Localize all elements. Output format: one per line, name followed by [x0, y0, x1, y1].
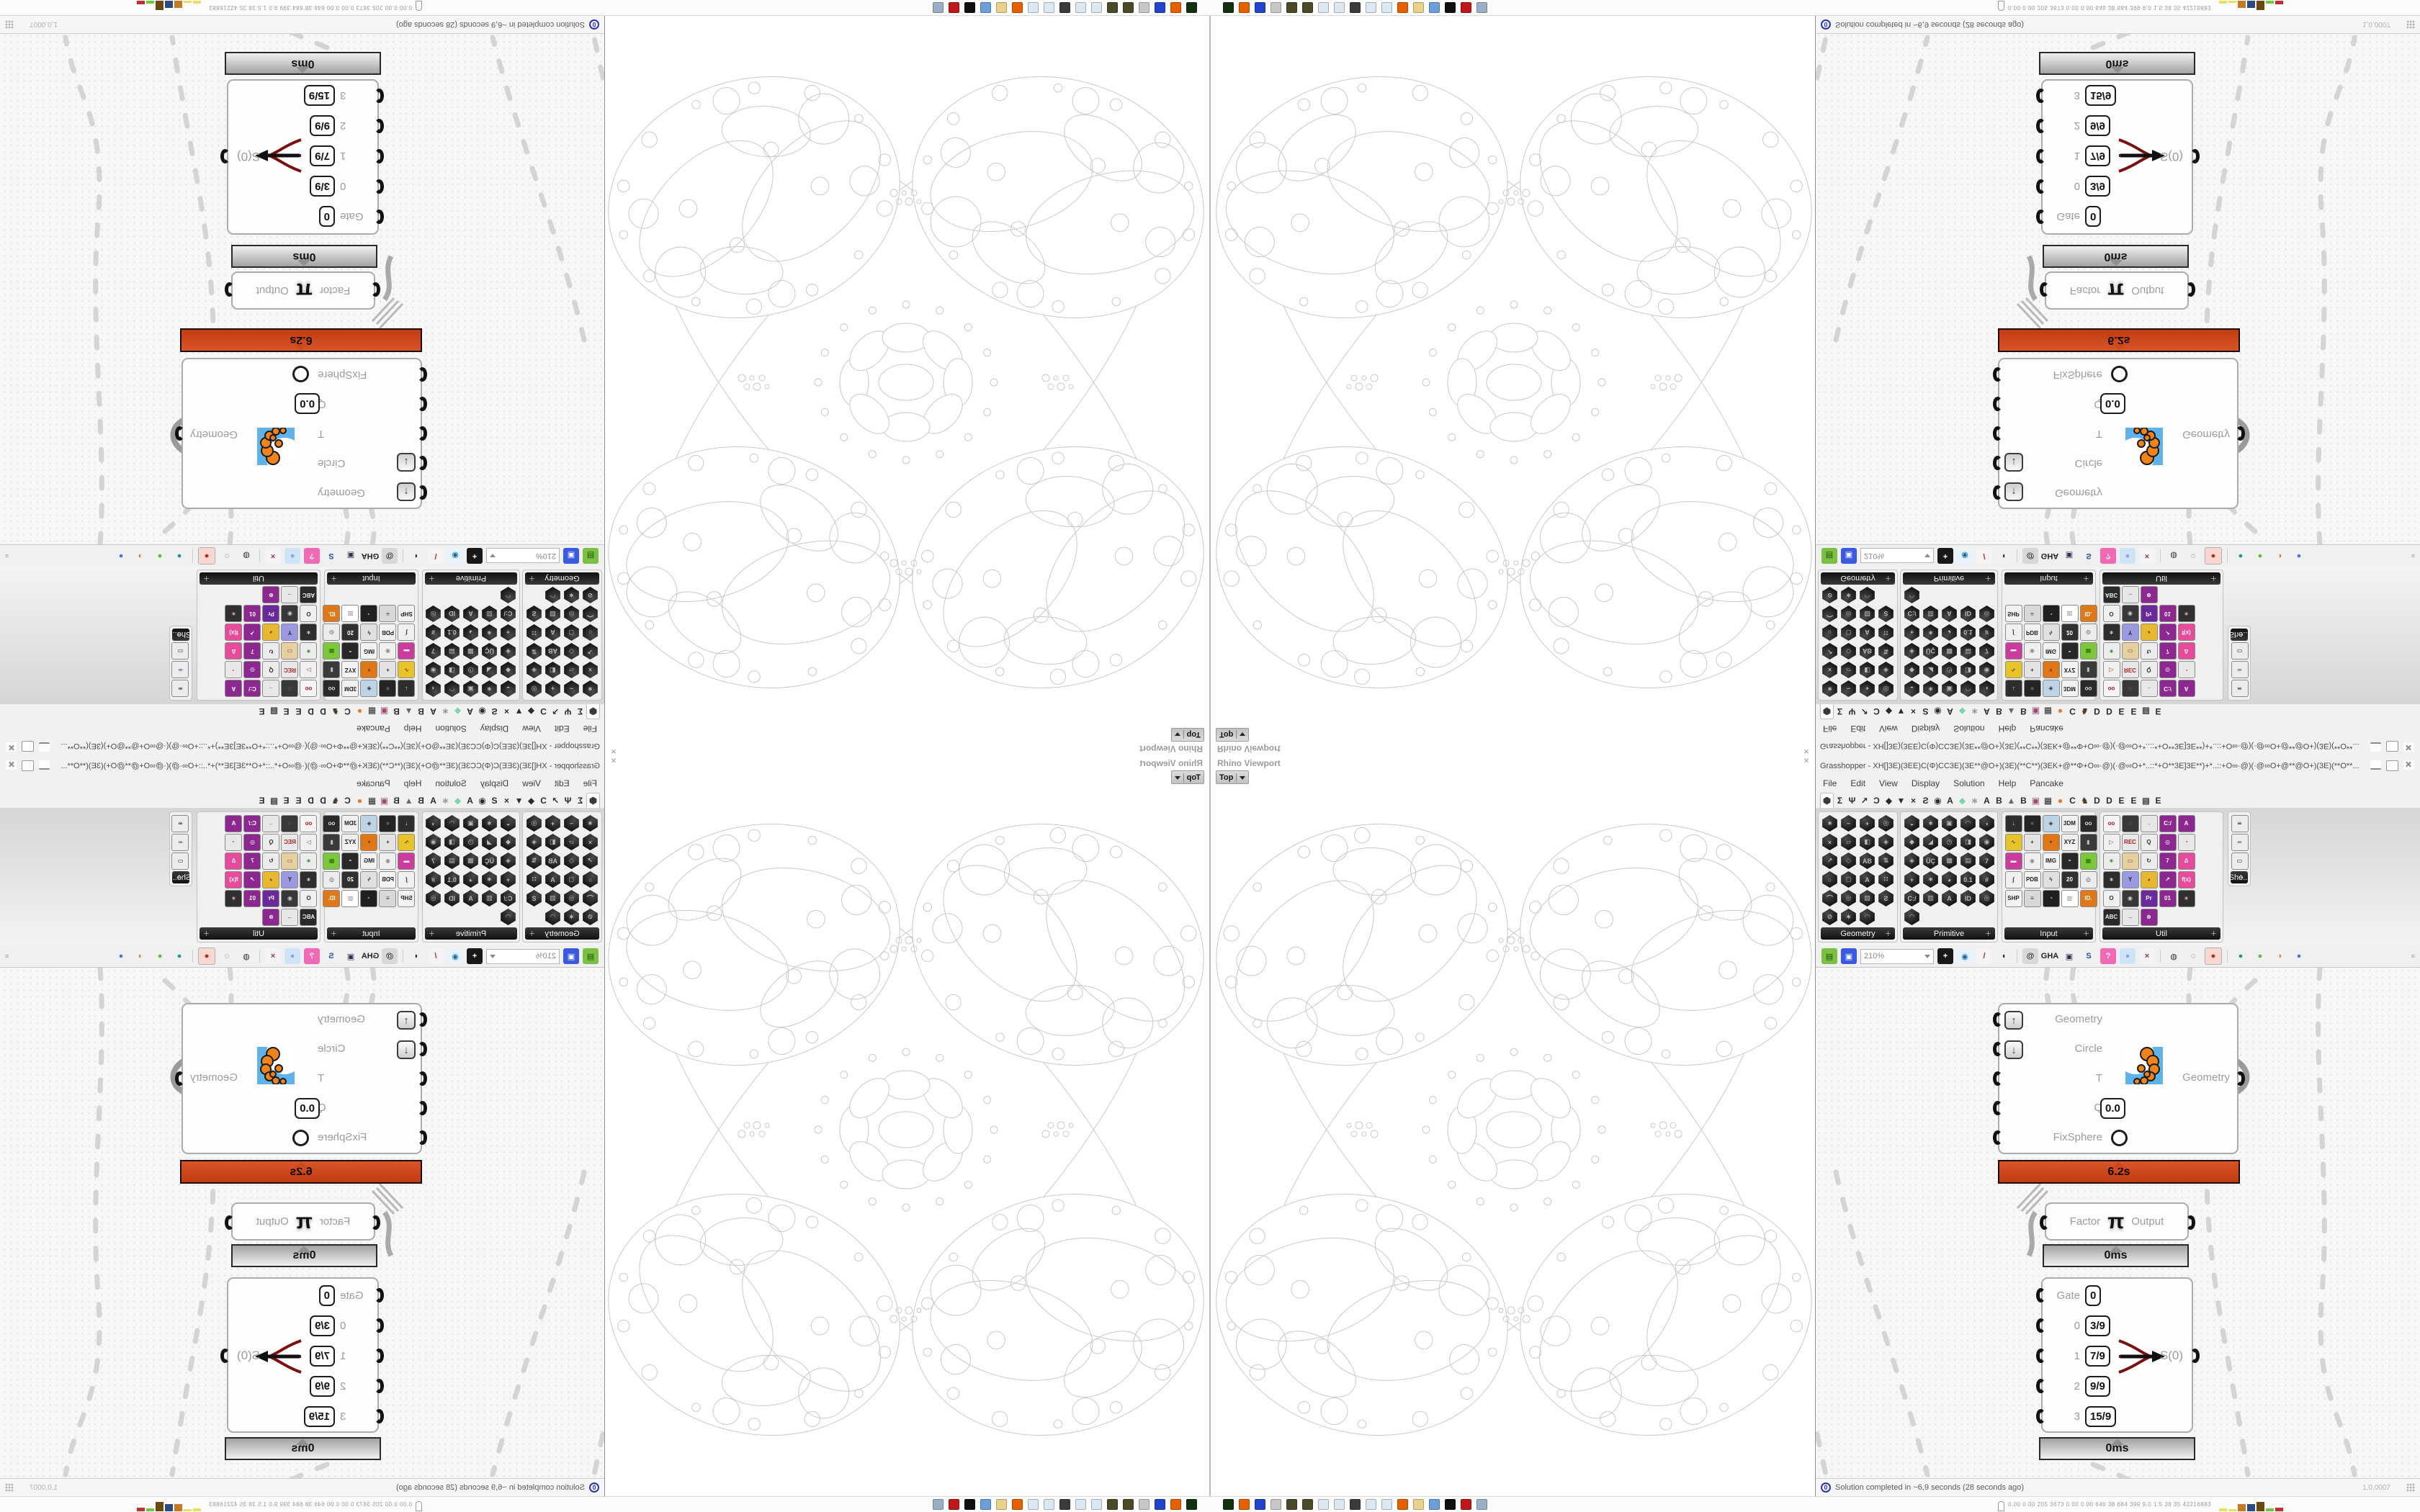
component-icon[interactable]: ◠	[544, 908, 562, 926]
graft-up-icon[interactable]: ↑	[2004, 482, 2023, 501]
tab-plugin-dotgrid[interactable]: ▩	[2140, 704, 2152, 719]
component-icon[interactable]: ▦	[2079, 642, 2097, 660]
gha-loader-icon[interactable]: GHA	[362, 548, 378, 564]
resize-grip[interactable]	[2406, 20, 2415, 29]
component-icon[interactable]: oo	[2079, 680, 2097, 698]
component-icon[interactable]: ▤	[443, 852, 461, 870]
menu-pancake[interactable]: Pancake	[357, 724, 390, 734]
tab-plugin-shield[interactable]: ▣	[2030, 793, 2042, 808]
component-icon[interactable]: 3DM	[341, 814, 359, 832]
preview-icon[interactable]: ◉	[447, 948, 463, 964]
component-icon[interactable]: ∫	[398, 624, 416, 642]
component-icon[interactable]: ◷	[462, 661, 480, 679]
grasshopper-canvas[interactable]: Geometry↑Circle↓TQ0.0FixSphereGeometry 6…	[0, 968, 604, 1478]
tab-plugin-leaf[interactable]: ◆	[1956, 704, 1968, 719]
component-icon[interactable]: #	[1978, 624, 1996, 642]
component-icon[interactable]: →	[281, 586, 299, 604]
wires-icon[interactable]: ×	[265, 948, 281, 964]
component-icon[interactable]: ◒	[1903, 814, 1921, 832]
output-grip[interactable]	[220, 1349, 230, 1363]
component-icon[interactable]: ×	[1821, 661, 1839, 679]
component-icon[interactable]: Pr	[262, 889, 280, 907]
component-icon[interactable]: SHP	[398, 889, 416, 907]
component-icon[interactable]: 3DM	[341, 680, 359, 698]
palette-caption[interactable]: Input＋	[2004, 572, 2093, 585]
tab-params[interactable]	[586, 793, 600, 808]
component-icon[interactable]: 3DM	[2061, 814, 2079, 832]
stream-value-box[interactable]: 7/9	[310, 1346, 335, 1367]
component-icon[interactable]: ◉	[2023, 852, 2041, 870]
firefox-icon[interactable]	[1170, 2, 1181, 13]
tab-plugin-orange[interactable]: ●	[354, 704, 366, 719]
component-icon[interactable]: ▥	[341, 605, 359, 623]
component-icon[interactable]: ∗	[480, 814, 498, 832]
input-grip[interactable]	[418, 1130, 427, 1145]
component-icon[interactable]: ◆	[1903, 661, 1921, 679]
component-icon[interactable]: →	[2121, 908, 2139, 926]
component-icon[interactable]: ◠	[1903, 586, 1921, 604]
input-grip[interactable]	[375, 1318, 384, 1333]
component-icon[interactable]: ▾	[360, 661, 378, 679]
component-icon[interactable]: ≡	[379, 605, 397, 623]
zoom-level-select[interactable]: 210%	[486, 549, 560, 564]
menu-display[interactable]: Display	[1912, 724, 1940, 734]
stream-value-box[interactable]: 9/9	[2085, 1376, 2110, 1397]
component-icon[interactable]: ◖	[424, 680, 442, 698]
menu-file[interactable]: File	[1823, 778, 1837, 788]
component-icon[interactable]: 20	[341, 870, 359, 888]
notepad-icon[interactable]	[1366, 2, 1376, 13]
tab-plugin-a2[interactable]: A	[427, 704, 439, 719]
floppy64-icon[interactable]	[1155, 1499, 1165, 1510]
component-icon[interactable]: ⊗	[262, 908, 280, 926]
component-icon[interactable]: C:/	[243, 814, 261, 832]
open-file-icon[interactable]: ▤	[583, 548, 599, 564]
archive-icon[interactable]	[1445, 1499, 1456, 1510]
component-icon[interactable]: ∿	[398, 661, 416, 679]
stream-filter-component[interactable]: Gate003/917/929/9315/9S(0)	[227, 79, 379, 235]
component-icon[interactable]: ◌	[281, 814, 299, 832]
input-grip[interactable]	[375, 89, 384, 103]
menu-file[interactable]: File	[583, 778, 597, 788]
tab-curve[interactable]: Ɔ	[537, 793, 550, 808]
sphere-teal-icon[interactable]: ●	[171, 948, 187, 964]
stream-value-box[interactable]: 7/9	[2085, 146, 2110, 167]
component-icon[interactable]: ABC	[2102, 586, 2120, 604]
remote-panel-icon[interactable]: @	[382, 548, 398, 564]
pi-component[interactable]: Factor π Output	[2045, 271, 2189, 310]
component-icon[interactable]: ◔	[360, 889, 378, 907]
component-icon[interactable]: ◌	[2121, 814, 2139, 832]
tab-vector[interactable]: ↗	[1858, 793, 1870, 808]
window-icon[interactable]: ▣	[2061, 548, 2077, 564]
preview-shaded-icon[interactable]: ●	[2205, 547, 2222, 564]
input-grip[interactable]	[375, 210, 384, 224]
input-grip[interactable]	[418, 1042, 427, 1056]
tab-plugin-leaf[interactable]: ◆	[452, 793, 464, 808]
document-icon[interactable]	[1270, 2, 1281, 13]
component-icon[interactable]: ▭	[281, 852, 299, 870]
component-icon[interactable]: Ƨ	[1877, 889, 1895, 907]
viewport-close-icon[interactable]: ✕	[1802, 746, 1811, 755]
sketch-pen-icon[interactable]: /	[1976, 948, 1992, 964]
component-icon[interactable]: ∗	[1922, 870, 1940, 888]
tab-transform[interactable]: Ƨ	[488, 704, 501, 719]
palette-caption[interactable]: Sho...＋	[172, 871, 189, 883]
component-icon[interactable]: ◔	[2177, 833, 2195, 851]
component-icon[interactable]: ID.	[323, 889, 341, 907]
component-icon[interactable]: ∗	[2102, 870, 2120, 888]
fractal-component[interactable]: Geometry↑Circle↓TQ0.0FixSphereGeometry	[1998, 358, 2238, 509]
input-grip[interactable]	[375, 1409, 384, 1423]
component-icon[interactable]: ≡	[2023, 889, 2041, 907]
palette-caption[interactable]: Util＋	[200, 572, 318, 585]
menu-edit[interactable]: Edit	[555, 724, 570, 734]
palette-caption[interactable]: Util＋	[2102, 927, 2220, 940]
tab-plugin-bird[interactable]: ♞	[2079, 793, 2091, 808]
dark-sphere-icon[interactable]	[1123, 2, 1134, 13]
component-icon[interactable]: +	[2023, 833, 2041, 851]
input-grip[interactable]	[2036, 1288, 2045, 1302]
component-icon[interactable]: ▮	[323, 833, 341, 851]
toolbar-overflow-icon[interactable]: ≡	[6, 552, 9, 559]
firefox-icon[interactable]	[1397, 2, 1408, 13]
fixsphere-toggle[interactable]	[292, 366, 309, 382]
input-grip[interactable]	[1993, 367, 2002, 382]
palette-caption[interactable]: Geometry＋	[525, 927, 599, 940]
tab-vector[interactable]: ↗	[1858, 704, 1870, 719]
component-icon[interactable]: 0.1	[443, 870, 461, 888]
maximize-icon[interactable]	[2386, 741, 2398, 752]
notepad-icon[interactable]	[1334, 1499, 1345, 1510]
sphere-green-icon[interactable]: ●	[2252, 948, 2268, 964]
tab-plugin-e2[interactable]: E	[280, 793, 292, 808]
component-icon[interactable]: ◔	[225, 661, 243, 679]
component-icon[interactable]: ◎	[1877, 680, 1895, 698]
component-icon[interactable]: ◻	[1839, 870, 1857, 888]
tab-plugin-flower[interactable]: ∗	[1968, 793, 1981, 808]
component-icon[interactable]: ■	[379, 814, 397, 832]
component-icon[interactable]: REC	[281, 833, 299, 851]
component-icon[interactable]: f(x)	[2177, 624, 2195, 642]
component-icon[interactable]: ◷	[462, 833, 480, 851]
component-icon[interactable]: ID	[443, 605, 461, 623]
component-icon[interactable]: ∷	[1877, 870, 1895, 888]
component-icon[interactable]: ⊘	[581, 908, 599, 926]
component-icon[interactable]: +	[1858, 814, 1876, 832]
tab-plugin-mountain[interactable]: ▲	[403, 704, 415, 719]
component-icon[interactable]: ⌒	[581, 605, 599, 623]
component-icon[interactable]: →	[262, 680, 280, 698]
component-icon[interactable]: ◔	[360, 605, 378, 623]
component-icon[interactable]: Ƨ	[1877, 605, 1895, 623]
component-icon[interactable]: SHP	[2004, 889, 2022, 907]
component-icon[interactable]: ∗	[480, 624, 498, 642]
tab-plugin-e2[interactable]: E	[2128, 793, 2140, 808]
component-icon[interactable]: ▱	[563, 661, 581, 679]
tab-plugin-e[interactable]: E	[292, 704, 305, 719]
component-icon[interactable]: ◉	[2121, 889, 2139, 907]
zoom-level-select[interactable]: 210%	[486, 949, 560, 964]
window-icon[interactable]: ▣	[2061, 948, 2077, 964]
tab-plugin-c[interactable]: C	[2066, 704, 2079, 719]
component-icon[interactable]: ↻	[262, 642, 280, 660]
component-icon[interactable]: ~	[1839, 680, 1857, 698]
menu-display[interactable]: Display	[480, 724, 508, 734]
input-grip[interactable]	[1993, 1130, 2002, 1145]
component-icon[interactable]: ⇅	[525, 852, 543, 870]
component-icon[interactable]: 7	[1978, 642, 1996, 660]
component-icon[interactable]: ∗	[480, 680, 498, 698]
tab-plugin-b[interactable]: B	[1993, 793, 2005, 808]
component-icon[interactable]: C:/	[2159, 680, 2177, 698]
terminal-icon[interactable]	[1223, 1499, 1234, 1510]
tab-plugin-e[interactable]: E	[2115, 704, 2128, 719]
component-icon[interactable]: ◆	[499, 833, 517, 851]
component-icon[interactable]: +	[1858, 680, 1876, 698]
finder-icon[interactable]: S	[2081, 548, 2097, 564]
component-icon[interactable]: ▤	[1959, 852, 1977, 870]
component-icon[interactable]: ◕	[2140, 624, 2158, 642]
tab-plugin-a2[interactable]: A	[1981, 793, 1993, 808]
finder-icon[interactable]: S	[2081, 948, 2097, 964]
component-icon[interactable]: ID	[1959, 889, 1977, 907]
component-icon[interactable]: ▥	[2061, 605, 2079, 623]
component-icon[interactable]: PDB	[2023, 870, 2041, 888]
component-icon[interactable]: ▾	[2042, 833, 2060, 851]
component-icon[interactable]: ◎	[2079, 624, 2097, 642]
zoom-level-select[interactable]: 210%	[1860, 549, 1934, 564]
graft-up-icon[interactable]: ↑	[397, 1011, 416, 1030]
terminal-icon[interactable]	[1186, 2, 1197, 13]
component-icon[interactable]: ∗	[581, 680, 599, 698]
component-icon[interactable]: ◕	[262, 870, 280, 888]
component-icon[interactable]: O	[2102, 889, 2120, 907]
component-icon[interactable]: 7	[2159, 642, 2177, 660]
viewport-close-icon[interactable]: ✕	[1802, 757, 1811, 766]
component-icon[interactable]: ◧	[544, 661, 562, 679]
finder-icon[interactable]: S	[323, 948, 339, 964]
component-icon[interactable]: A	[1940, 605, 1958, 623]
preview-off-icon[interactable]: ◍	[238, 948, 254, 964]
tab-sets[interactable]: Ψ	[562, 793, 574, 808]
component-icon[interactable]: ∷	[525, 624, 543, 642]
menu-pancake[interactable]: Pancake	[2030, 778, 2063, 788]
component-icon[interactable]: ◎	[2159, 661, 2177, 679]
component-icon[interactable]: ⊘	[581, 586, 599, 604]
component-icon[interactable]: C:/	[1903, 889, 1921, 907]
component-icon[interactable]: ◖	[1978, 814, 1996, 832]
component-icon[interactable]: A	[1858, 624, 1876, 642]
close-icon[interactable]	[2403, 742, 2414, 752]
component-icon[interactable]: ◠	[443, 814, 461, 832]
fixsphere-toggle[interactable]	[2111, 366, 2128, 382]
output-grip[interactable]	[2190, 149, 2200, 163]
component-icon[interactable]: ◎	[563, 889, 581, 907]
tab-mesh[interactable]: ▼	[1895, 793, 1907, 808]
notepad-icon[interactable]	[1044, 1499, 1054, 1510]
tab-plugin-d[interactable]: D	[2091, 793, 2103, 808]
component-icon[interactable]: ◉	[379, 642, 397, 660]
component-icon[interactable]: ▬	[398, 852, 416, 870]
component-icon[interactable]: ↓	[398, 814, 416, 832]
component-icon[interactable]: XYZ	[2061, 661, 2079, 679]
component-icon[interactable]: REC	[2121, 661, 2139, 679]
palette-caption[interactable]: Primitive＋	[425, 927, 517, 940]
viewport-close-icon[interactable]: ✕	[609, 746, 618, 755]
component-icon[interactable]: ◻	[563, 624, 581, 642]
tab-curve[interactable]: Ɔ	[537, 704, 550, 719]
input-grip[interactable]	[371, 282, 380, 297]
component-icon[interactable]: +	[544, 814, 562, 832]
menu-edit[interactable]: Edit	[1850, 724, 1865, 734]
component-icon[interactable]: O	[300, 889, 318, 907]
notepad-icon[interactable]	[1318, 1499, 1329, 1510]
component-icon[interactable]: ⊗	[2140, 908, 2158, 926]
component-icon[interactable]: ◷	[1940, 833, 1958, 851]
component-icon[interactable]: ∗	[300, 642, 318, 660]
rhino-viewport[interactable]: Rhino Viewport ✕ Top	[1210, 756, 1815, 1496]
tab-curve[interactable]: Ɔ	[1870, 704, 1883, 719]
component-icon[interactable]: ◎	[563, 605, 581, 623]
component-icon[interactable]: Δ	[2177, 642, 2195, 660]
component-icon[interactable]: 0.1	[443, 624, 461, 642]
tab-plugin-d2[interactable]: D	[2103, 793, 2115, 808]
component-icon[interactable]: ◢	[480, 661, 498, 679]
stream-value-box[interactable]: 3/9	[2085, 176, 2110, 197]
input-grip[interactable]	[375, 179, 384, 194]
input-grip[interactable]	[2036, 1318, 2045, 1333]
component-icon[interactable]: ↓	[398, 680, 416, 698]
component-icon[interactable]: ▭	[2121, 642, 2139, 660]
tab-mesh[interactable]: ▼	[513, 793, 525, 808]
resize-grip[interactable]	[5, 1483, 14, 1492]
component-icon[interactable]: #	[1978, 870, 1996, 888]
component-icon[interactable]: ◌	[2121, 680, 2139, 698]
component-icon[interactable]: ◒	[499, 680, 517, 698]
component-icon[interactable]: ∗	[1922, 814, 1940, 832]
component-icon[interactable]: ϟ	[360, 870, 378, 888]
sphere-blue-icon[interactable]: ●	[2291, 548, 2307, 564]
remote-panel-icon[interactable]: @	[382, 948, 398, 964]
resize-grip[interactable]	[5, 20, 14, 29]
component-icon[interactable]: ◢	[1922, 661, 1940, 679]
component-icon[interactable]: Y	[2121, 624, 2139, 642]
component-icon[interactable]: ▭	[2231, 642, 2249, 660]
tab-transform[interactable]: Ƨ	[488, 793, 501, 808]
component-icon[interactable]: O	[2102, 605, 2120, 623]
menu-edit[interactable]: Edit	[555, 778, 570, 788]
component-icon[interactable]: ∗	[1821, 814, 1839, 832]
tab-plugin-d2[interactable]: D	[2103, 704, 2115, 719]
dark-sphere-icon[interactable]	[1302, 1499, 1313, 1510]
component-icon[interactable]: O	[300, 605, 318, 623]
zoom-extents-icon[interactable]: +	[1937, 948, 1953, 964]
tab-plugin-c[interactable]: C	[341, 704, 354, 719]
component-icon[interactable]: ▭	[2231, 852, 2249, 870]
graft-up-icon[interactable]: ↑	[397, 482, 416, 501]
palette-caption[interactable]: Primitive＋	[1903, 572, 1995, 585]
tab-plugin-b2[interactable]: B	[390, 793, 403, 808]
component-icon[interactable]: ◢	[480, 833, 498, 851]
component-icon[interactable]: f(x)	[225, 624, 243, 642]
tab-plugin-flower[interactable]: ∗	[1968, 704, 1981, 719]
component-icon[interactable]: Δ	[225, 642, 243, 660]
output-grip[interactable]	[225, 282, 234, 297]
component-icon[interactable]: ▩	[1940, 642, 1958, 660]
fixsphere-toggle[interactable]	[292, 1130, 309, 1146]
open-file-icon[interactable]: ▤	[1821, 548, 1837, 564]
component-icon[interactable]: ID.	[2079, 889, 2097, 907]
component-icon[interactable]: ABC	[300, 586, 318, 604]
menu-help[interactable]: Help	[404, 778, 422, 788]
tab-plugin-a2[interactable]: A	[427, 793, 439, 808]
component-icon[interactable]: ◈	[2042, 680, 2060, 698]
component-icon[interactable]: SHP	[2004, 605, 2022, 623]
component-icon[interactable]: ↻	[2140, 852, 2158, 870]
close-icon[interactable]	[6, 742, 17, 752]
component-icon[interactable]: XYZ	[341, 833, 359, 851]
component-icon[interactable]: oo	[300, 680, 318, 698]
idea-bulb-icon[interactable]: ●	[284, 948, 300, 964]
component-icon[interactable]: ◈	[525, 661, 543, 679]
component-icon[interactable]: ■	[2023, 680, 2041, 698]
component-icon[interactable]: Ƨ	[525, 889, 543, 907]
tab-plugin-dotgrid[interactable]: ▩	[268, 704, 280, 719]
input-grip[interactable]	[2036, 1409, 2045, 1423]
component-icon[interactable]: ◓	[2061, 642, 2079, 660]
component-icon[interactable]: ◠	[1858, 586, 1876, 604]
component-icon[interactable]: ϟ	[360, 624, 378, 642]
component-icon[interactable]: →	[2140, 680, 2158, 698]
input-grip[interactable]	[375, 149, 384, 163]
floppy64-icon[interactable]	[1255, 1499, 1265, 1510]
component-icon[interactable]: ∗	[1922, 624, 1940, 642]
component-icon[interactable]: Q	[262, 833, 280, 851]
component-icon[interactable]: ◕	[2140, 870, 2158, 888]
tab-plugin-b2[interactable]: B	[2017, 793, 2030, 808]
component-icon[interactable]: →	[281, 908, 299, 926]
component-icon[interactable]: #	[424, 870, 442, 888]
component-icon[interactable]: ◎	[1839, 605, 1857, 623]
calculator-icon[interactable]	[933, 1499, 944, 1510]
input-grip[interactable]	[2040, 1215, 2049, 1230]
component-icon[interactable]: ∗	[225, 889, 243, 907]
sphere-orange-icon[interactable]: ◑	[2272, 548, 2287, 564]
component-icon[interactable]: Y	[281, 870, 299, 888]
component-icon[interactable]: +	[2023, 661, 2041, 679]
component-icon[interactable]: ▣	[1940, 814, 1958, 832]
component-icon[interactable]: ⇅	[1877, 642, 1895, 660]
component-icon[interactable]: ∞	[2231, 814, 2249, 832]
component-icon[interactable]: ≡	[2023, 605, 2041, 623]
tab-plugin-orange[interactable]: ●	[2054, 793, 2066, 808]
menu-view[interactable]: View	[1879, 778, 1898, 788]
component-icon[interactable]: ▱	[1839, 661, 1857, 679]
flatten-down-icon[interactable]: ↓	[397, 1040, 416, 1059]
component-icon[interactable]: ÜÇ	[480, 642, 498, 660]
component-icon[interactable]: ◎	[424, 605, 442, 623]
component-icon[interactable]: ▥	[1922, 605, 1940, 623]
red-badge-icon[interactable]	[1461, 1499, 1471, 1510]
tab-plugin-e3[interactable]: E	[2152, 704, 2164, 719]
stream-value-box[interactable]: 0	[319, 1285, 335, 1306]
component-icon[interactable]: ID	[1959, 605, 1977, 623]
preview-off-icon[interactable]: ◍	[2166, 948, 2182, 964]
component-icon[interactable]: ◖	[424, 814, 442, 832]
input-grip[interactable]	[2040, 282, 2049, 297]
input-grip[interactable]	[2036, 119, 2045, 133]
